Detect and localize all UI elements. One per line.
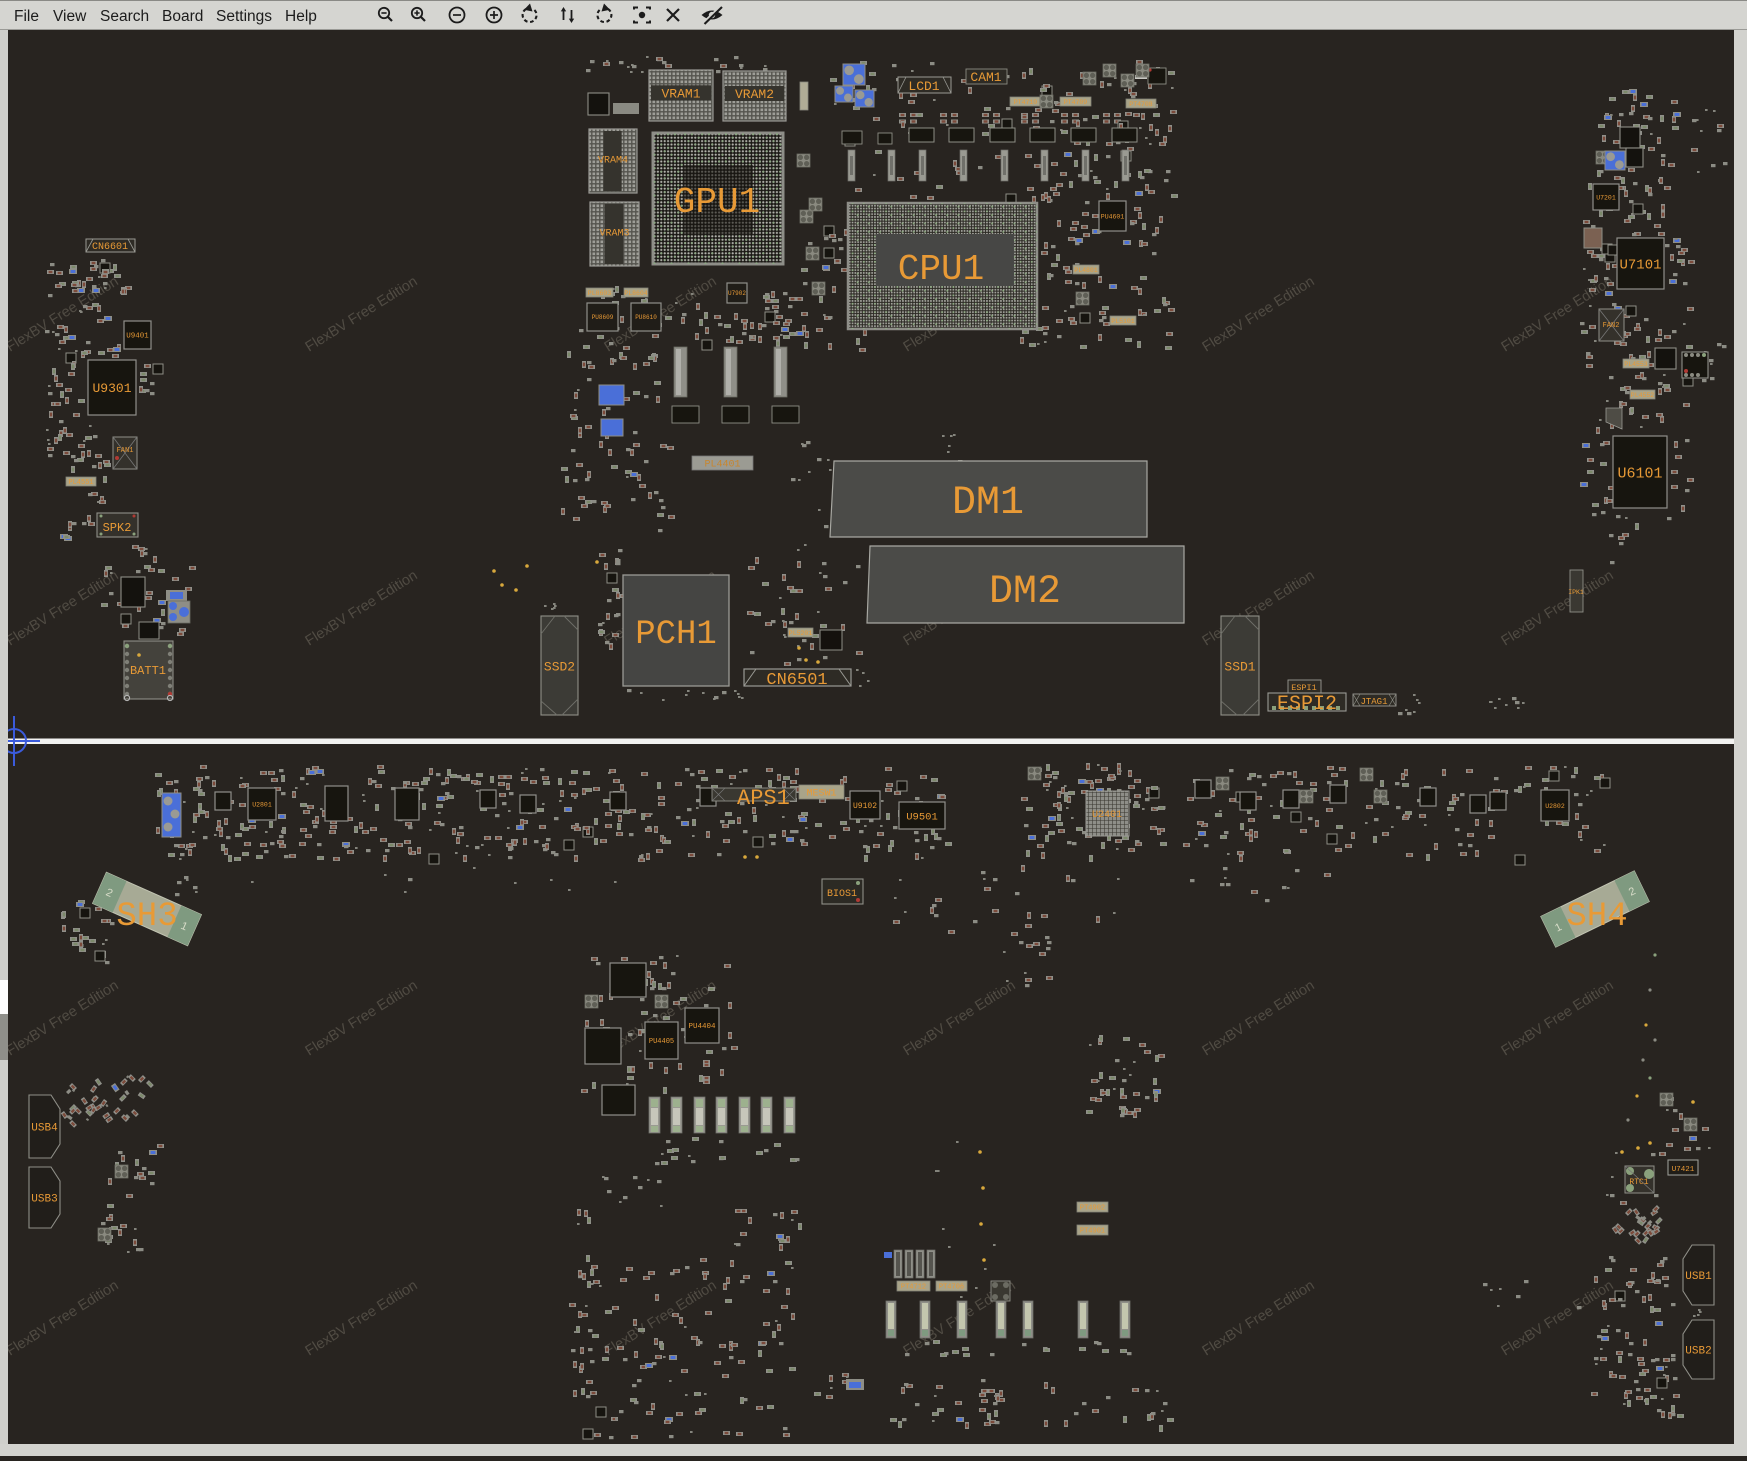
svg-text:U2401: U2401 xyxy=(1092,810,1122,821)
svg-text:VRAM1: VRAM1 xyxy=(661,87,700,102)
svg-text:PL4553: PL4553 xyxy=(1624,361,1648,368)
svg-text:PL4401: PL4401 xyxy=(704,460,740,471)
svg-text:LCD1: LCD1 xyxy=(908,79,939,94)
svg-text:U7902: U7902 xyxy=(728,290,746,297)
svg-text:IPK1: IPK1 xyxy=(1568,589,1584,596)
svg-text:PU4601: PU4601 xyxy=(1101,213,1125,220)
svg-text:Search: Search xyxy=(100,8,149,25)
svg-text:U9501: U9501 xyxy=(906,811,938,823)
svg-text:BIOS1: BIOS1 xyxy=(827,889,857,900)
svg-text:RTC1: RTC1 xyxy=(1629,1178,1648,1187)
svg-text:U2802: U2802 xyxy=(1545,803,1565,810)
svg-text:FAN2: FAN2 xyxy=(1603,322,1620,330)
svg-text:PL4551: PL4551 xyxy=(68,479,93,487)
svg-text:U7421: U7421 xyxy=(1672,1166,1695,1174)
svg-text:PU8610: PU8610 xyxy=(635,314,657,321)
svg-text:VRAM3: VRAM3 xyxy=(599,229,629,240)
svg-text:PT4706: PT4706 xyxy=(939,1284,964,1292)
svg-text:USB3: USB3 xyxy=(31,1194,57,1206)
svg-text:Settings: Settings xyxy=(216,8,272,25)
svg-text:PT4712: PT4712 xyxy=(901,1284,926,1292)
svg-text:USB1: USB1 xyxy=(1685,1271,1712,1283)
svg-text:U9102: U9102 xyxy=(853,802,877,811)
svg-text:U9401: U9401 xyxy=(126,333,149,341)
svg-text:PL4801: PL4801 xyxy=(1074,267,1098,274)
svg-text:SH4: SH4 xyxy=(1566,898,1627,936)
svg-text:USB4: USB4 xyxy=(31,1123,58,1135)
svg-text:BATT1: BATT1 xyxy=(130,664,166,678)
svg-text:DM2: DM2 xyxy=(989,570,1061,615)
svg-text:PT4708: PT4708 xyxy=(1129,101,1153,108)
svg-text:U7101: U7101 xyxy=(1619,258,1661,274)
svg-text:MESW1: MESW1 xyxy=(806,789,836,800)
svg-text:PL8604: PL8604 xyxy=(624,290,648,297)
svg-text:CN6501: CN6501 xyxy=(766,671,827,690)
svg-text:CPU1: CPU1 xyxy=(898,249,984,290)
svg-text:U7201: U7201 xyxy=(1596,194,1616,201)
svg-text:CAM1: CAM1 xyxy=(970,70,1001,85)
svg-text:PL5201: PL5201 xyxy=(789,630,813,637)
svg-text:VRAM4: VRAM4 xyxy=(598,156,628,167)
svg-text:U9301: U9301 xyxy=(92,381,131,396)
svg-text:PT4710: PT4710 xyxy=(1014,99,1038,106)
svg-text:JTAG1: JTAG1 xyxy=(1360,697,1387,707)
svg-text:CN6601: CN6601 xyxy=(92,242,128,253)
svg-text:SSD1: SSD1 xyxy=(1224,660,1255,675)
svg-text:SH3: SH3 xyxy=(116,898,177,936)
svg-text:File: File xyxy=(14,8,39,25)
svg-text:U2801: U2801 xyxy=(252,801,272,808)
svg-text:ESPI2: ESPI2 xyxy=(1277,693,1337,716)
svg-text:VRAM2: VRAM2 xyxy=(735,87,774,102)
svg-text:Board: Board xyxy=(162,8,203,25)
svg-text:ESPI1: ESPI1 xyxy=(1291,683,1317,693)
svg-text:GPU1: GPU1 xyxy=(674,182,760,223)
svg-text:APS1: APS1 xyxy=(737,786,790,811)
svg-text:PU4405: PU4405 xyxy=(649,1038,674,1046)
svg-text:FAN1: FAN1 xyxy=(117,447,134,455)
svg-text:PU8609: PU8609 xyxy=(592,314,614,321)
svg-text:PL4552: PL4552 xyxy=(1631,392,1655,399)
svg-text:PT4709: PT4709 xyxy=(1064,99,1088,106)
svg-text:Help: Help xyxy=(285,8,317,25)
svg-text:U6101: U6101 xyxy=(1617,465,1662,482)
svg-text:PU4404: PU4404 xyxy=(688,1023,716,1031)
svg-text:View: View xyxy=(53,8,87,25)
svg-text:PT4902: PT4902 xyxy=(1080,1205,1105,1213)
svg-text:PL8603: PL8603 xyxy=(588,290,612,297)
svg-text:PT4901: PT4901 xyxy=(1080,1228,1105,1236)
svg-text:SSD2: SSD2 xyxy=(544,660,575,675)
svg-text:SPK2: SPK2 xyxy=(103,521,132,535)
svg-text:PL5101: PL5101 xyxy=(1111,318,1135,325)
svg-text:PCH1: PCH1 xyxy=(635,616,717,654)
svg-text:DM1: DM1 xyxy=(952,481,1024,526)
svg-text:USB2: USB2 xyxy=(1685,1346,1711,1358)
